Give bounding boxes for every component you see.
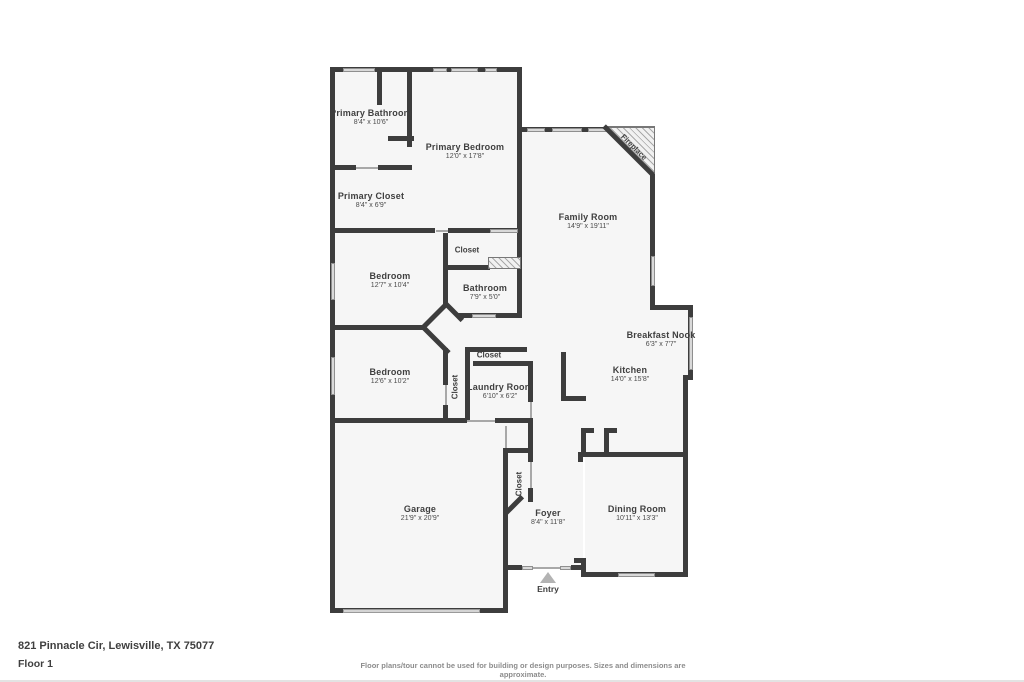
wall xyxy=(330,418,467,423)
wall xyxy=(473,361,533,366)
entry-arrow-icon xyxy=(540,572,556,583)
room-dims: 6'10" x 6'2" xyxy=(467,393,533,400)
room-label-foyer: Foyer 8'4" x 11'8" xyxy=(531,508,565,526)
room-label-primary-bedroom: Primary Bedroom 12'0" x 17'8" xyxy=(426,142,505,160)
room-dims: 10'11" x 13'3" xyxy=(608,515,666,522)
wall xyxy=(561,352,566,401)
room-label-dining-room: Dining Room 10'11" x 13'3" xyxy=(608,504,666,522)
wall xyxy=(503,512,508,613)
window xyxy=(343,68,375,72)
room-name: Primary Bedroom xyxy=(426,142,505,152)
room-name: Bathroom xyxy=(463,283,507,293)
wall xyxy=(495,418,533,423)
disclaimer-text: Floor plans/tour cannot be used for buil… xyxy=(350,661,696,679)
wall xyxy=(683,375,688,577)
wall xyxy=(574,558,586,563)
window xyxy=(522,566,533,570)
wall xyxy=(330,165,356,170)
window xyxy=(433,68,447,72)
room-dims: 14'9" x 19'11" xyxy=(559,223,618,230)
room-dims: 8'4" x 6'9" xyxy=(338,202,404,209)
closet-label-bedroom1: Closet xyxy=(455,246,479,255)
room-name: Laundry Room xyxy=(467,382,533,392)
room-name: Primary Bathroom xyxy=(330,108,412,118)
garage-door xyxy=(343,609,480,613)
room-label-family-room: Family Room 14'9" x 19'11" xyxy=(559,212,618,230)
room-dims: 14'0" x 15'8" xyxy=(611,376,649,383)
wall xyxy=(443,270,448,305)
room-name: Breakfast Nook xyxy=(627,330,696,340)
room-dims: 8'4" x 11'8" xyxy=(531,519,565,526)
room-name: Foyer xyxy=(531,508,565,518)
wall xyxy=(330,228,435,233)
room-name: Bedroom xyxy=(370,367,411,377)
room-label-bedroom-1: Bedroom 12'7" x 10'4" xyxy=(370,271,411,289)
wall xyxy=(581,428,594,433)
wall xyxy=(330,67,335,613)
door-opening xyxy=(530,402,532,418)
window xyxy=(485,68,497,72)
room-name: Garage xyxy=(401,504,439,514)
window xyxy=(651,256,655,286)
room-dims: 6'3" x 7'7" xyxy=(627,341,696,348)
address-text: 821 Pinnacle Cir, Lewisville, TX 75077 xyxy=(18,640,214,652)
window xyxy=(331,263,335,300)
room-name: Family Room xyxy=(559,212,618,222)
room-fill xyxy=(653,378,685,455)
wall xyxy=(528,488,533,502)
wall xyxy=(377,67,382,105)
window xyxy=(472,314,496,318)
room-dims: 7'9" x 5'0" xyxy=(463,294,507,301)
room-fill xyxy=(519,129,653,455)
room-label-laundry-room: Laundry Room 6'10" x 6'2" xyxy=(467,382,533,400)
room-dims: 12'6" x 10'2" xyxy=(370,378,411,385)
window xyxy=(618,573,655,577)
window xyxy=(331,357,335,395)
wall xyxy=(583,452,688,457)
wall xyxy=(517,233,522,318)
closet-label-hall: Closet xyxy=(477,351,501,360)
floorplan-page: Fireplace Primary Bathroom 8'4" x 10'6" … xyxy=(0,0,1024,682)
wall xyxy=(604,428,617,433)
closet-label-bedroom2: Closet xyxy=(451,375,460,399)
fireplace-edge-right xyxy=(654,127,656,174)
window xyxy=(560,566,571,570)
room-dims: 12'7" x 10'4" xyxy=(370,282,411,289)
door-opening xyxy=(356,167,378,169)
room-label-primary-closet: Primary Closet 8'4" x 6'9" xyxy=(338,191,404,209)
room-name: Dining Room xyxy=(608,504,666,514)
window xyxy=(451,68,478,72)
door-opening xyxy=(505,426,507,448)
room-dims: 21'9" x 20'9" xyxy=(401,515,439,522)
wall xyxy=(650,170,655,310)
door-opening xyxy=(530,462,532,488)
door-opening xyxy=(436,230,448,232)
wall xyxy=(561,396,586,401)
room-name: Kitchen xyxy=(611,365,649,375)
window xyxy=(552,128,582,132)
room-dims: 8'4" x 10'6" xyxy=(330,119,412,126)
room-label-primary-bathroom: Primary Bathroom 8'4" x 10'6" xyxy=(330,108,412,126)
room-name: Bedroom xyxy=(370,271,411,281)
wall xyxy=(528,448,533,462)
entry-label: Entry xyxy=(537,584,559,594)
window xyxy=(490,229,518,233)
door-opening xyxy=(445,385,447,405)
room-name: Primary Closet xyxy=(338,191,404,201)
shower-hatch xyxy=(488,257,521,269)
wall xyxy=(503,448,508,512)
door-opening xyxy=(533,567,560,569)
window xyxy=(527,128,545,132)
wall xyxy=(503,565,522,570)
fireplace-edge-top xyxy=(605,126,655,128)
room-dims: 12'0" x 17'8" xyxy=(426,153,505,160)
wall xyxy=(528,418,533,452)
door-opening xyxy=(467,420,495,422)
closet-label-foyer: Closet xyxy=(515,472,524,496)
wall xyxy=(443,265,490,270)
wall xyxy=(407,67,412,147)
room-label-bedroom-2: Bedroom 12'6" x 10'2" xyxy=(370,367,411,385)
wall xyxy=(517,67,522,233)
room-label-breakfast-nook: Breakfast Nook 6'3" x 7'7" xyxy=(627,330,696,348)
wall xyxy=(650,305,693,310)
floor-label: Floor 1 xyxy=(18,658,53,670)
wall xyxy=(330,325,426,330)
room-label-garage: Garage 21'9" x 20'9" xyxy=(401,504,439,522)
wall xyxy=(378,165,412,170)
room-label-kitchen: Kitchen 14'0" x 15'8" xyxy=(611,365,649,383)
room-label-bathroom: Bathroom 7'9" x 5'0" xyxy=(463,283,507,301)
